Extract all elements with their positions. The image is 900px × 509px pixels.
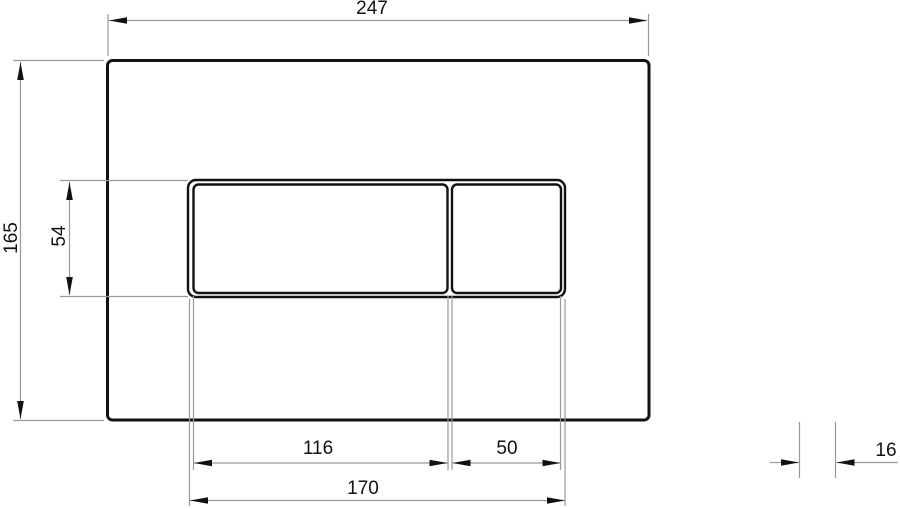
arrowhead-left: [453, 460, 471, 467]
dim-small-button-width: 50: [453, 438, 561, 466]
technical-drawing: 247 165 54: [0, 0, 900, 509]
large-button: [194, 185, 448, 294]
drawing-canvas: 247 165 54: [0, 0, 900, 509]
arrowhead-top: [66, 182, 73, 200]
dim-thickness: 16: [770, 422, 898, 478]
arrowhead-right: [629, 17, 647, 24]
dim-label-small-button-width: 50: [496, 438, 517, 459]
front-view: [108, 61, 650, 421]
dim-buttons-total-width: 170: [190, 478, 565, 504]
arrowhead-right: [547, 497, 565, 504]
dim-label-large-button-width: 116: [303, 438, 333, 459]
dim-label-buttons-total-width: 170: [347, 478, 379, 499]
dim-label-overall-width: 247: [356, 0, 388, 19]
arrowhead-right: [543, 460, 561, 467]
arrowhead-top: [17, 62, 24, 80]
arrowhead-right: [837, 459, 855, 466]
arrowhead-bottom: [66, 277, 73, 295]
dim-overall-width: 247: [108, 0, 649, 56]
arrowhead-left: [781, 459, 799, 466]
arrowhead-bottom: [17, 401, 24, 419]
dim-label-button-height: 54: [49, 225, 70, 247]
arrowhead-left: [194, 460, 212, 467]
dim-large-button-width: 116: [194, 438, 448, 466]
side-profile-outline: [800, 58, 836, 420]
arrowhead-right: [430, 460, 448, 467]
small-button: [452, 185, 561, 294]
arrowhead-left: [109, 17, 127, 24]
dim-label-thickness: 16: [875, 440, 896, 461]
arrowhead-left: [190, 497, 208, 504]
side-view: [800, 58, 836, 420]
dim-label-overall-height: 165: [1, 222, 22, 254]
